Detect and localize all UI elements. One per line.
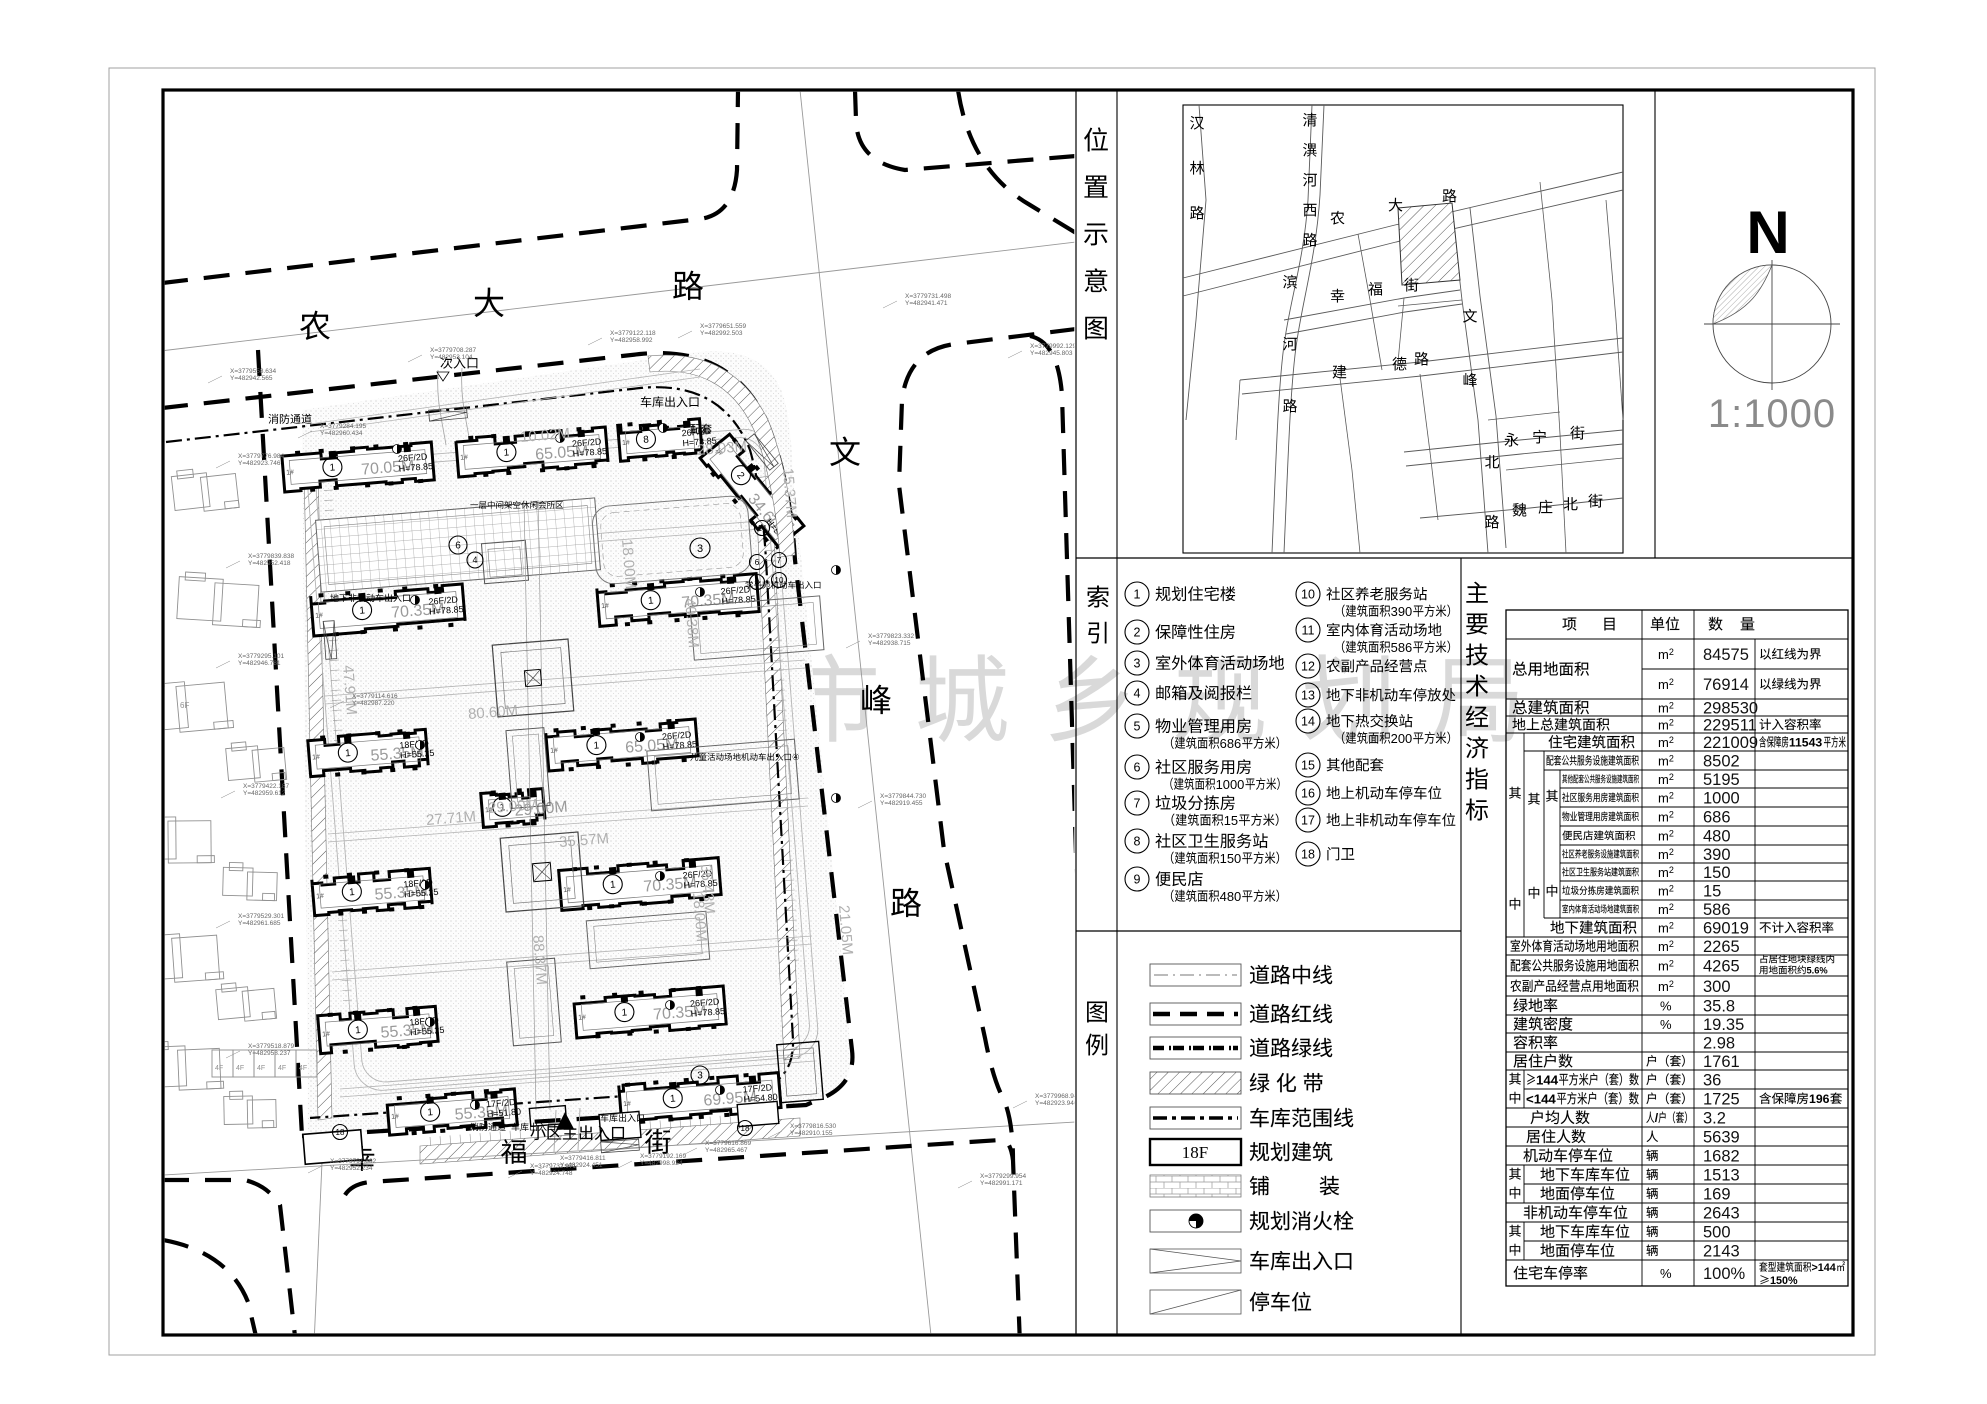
svg-text:229511: 229511 bbox=[1703, 716, 1757, 734]
svg-text:169: 169 bbox=[1703, 1185, 1731, 1203]
svg-text:1#: 1# bbox=[563, 887, 571, 895]
svg-text:7: 7 bbox=[1134, 796, 1141, 810]
svg-text:Y=482961.685: Y=482961.685 bbox=[238, 920, 281, 927]
svg-text:X=3779518.879: X=3779518.879 bbox=[248, 1043, 294, 1050]
svg-text:Y=482960.434: Y=482960.434 bbox=[320, 430, 363, 437]
svg-text:%: % bbox=[1660, 1017, 1672, 1032]
svg-text:36: 36 bbox=[1703, 1071, 1721, 1089]
svg-text:18F: 18F bbox=[1182, 1143, 1208, 1162]
svg-text:X=3779529.301: X=3779529.301 bbox=[238, 913, 284, 920]
svg-text:Y=482942.565: Y=482942.565 bbox=[230, 375, 273, 382]
svg-text:/: / bbox=[1655, 1111, 1659, 1125]
svg-text:586: 586 bbox=[1703, 901, 1731, 919]
svg-text:11543: 11543 bbox=[1789, 736, 1823, 750]
svg-text:4: 4 bbox=[1134, 686, 1141, 700]
svg-text:11: 11 bbox=[1302, 623, 1315, 637]
svg-text:1#: 1# bbox=[460, 454, 468, 462]
svg-text:1761: 1761 bbox=[1703, 1053, 1740, 1071]
svg-text:X=3779823.332: X=3779823.332 bbox=[868, 633, 914, 640]
svg-text:Y=482941.471: Y=482941.471 bbox=[905, 300, 948, 307]
svg-text:X=3779284.195: X=3779284.195 bbox=[320, 423, 366, 430]
svg-text:Y=482919.455: Y=482919.455 bbox=[880, 800, 923, 807]
svg-text:10: 10 bbox=[775, 576, 784, 585]
svg-text:X=3779791.862: X=3779791.862 bbox=[330, 1158, 376, 1165]
svg-text:Y=482953.104: Y=482953.104 bbox=[430, 354, 473, 361]
svg-text:3: 3 bbox=[697, 543, 703, 555]
svg-text:1725: 1725 bbox=[1703, 1090, 1740, 1108]
svg-text:X=3779422.187: X=3779422.187 bbox=[243, 783, 289, 790]
svg-text:1#: 1# bbox=[601, 603, 609, 611]
svg-text:84575: 84575 bbox=[1703, 646, 1749, 664]
svg-text:2643: 2643 bbox=[1703, 1204, 1740, 1222]
svg-text:X=3779558.634: X=3779558.634 bbox=[230, 368, 276, 375]
svg-text:%: % bbox=[1660, 999, 1672, 1014]
svg-text:1: 1 bbox=[1134, 587, 1141, 601]
svg-text:Y=482965.467: Y=482965.467 bbox=[705, 1147, 748, 1154]
svg-text:1#: 1# bbox=[312, 754, 320, 762]
svg-text:Y=482923.940: Y=482923.940 bbox=[1035, 1100, 1078, 1107]
svg-text:12: 12 bbox=[1301, 659, 1315, 673]
svg-text:150: 150 bbox=[1220, 851, 1242, 866]
svg-text:4265: 4265 bbox=[1703, 957, 1740, 975]
svg-text:5.6%: 5.6% bbox=[1807, 965, 1829, 975]
svg-text:X=3779616.869: X=3779616.869 bbox=[705, 1140, 751, 1147]
svg-text:196: 196 bbox=[1809, 1092, 1830, 1106]
svg-text:Y=482959.612: Y=482959.612 bbox=[243, 790, 286, 797]
svg-text:X=3779299.954: X=3779299.954 bbox=[980, 1173, 1026, 1180]
svg-text:X=3779844.730: X=3779844.730 bbox=[880, 793, 926, 800]
svg-text:35.8: 35.8 bbox=[1703, 997, 1735, 1015]
svg-text:3.2: 3.2 bbox=[1703, 1109, 1726, 1127]
svg-text:1682: 1682 bbox=[1703, 1147, 1740, 1165]
svg-text:7: 7 bbox=[777, 555, 782, 565]
svg-text:2265: 2265 bbox=[1703, 938, 1740, 956]
svg-text:100%: 100% bbox=[1703, 1265, 1746, 1283]
svg-text:Y=482958.992: Y=482958.992 bbox=[610, 337, 653, 344]
svg-text:④: ④ bbox=[792, 752, 799, 762]
svg-text:X=3779816.530: X=3779816.530 bbox=[790, 1123, 836, 1130]
svg-text:586: 586 bbox=[1391, 640, 1413, 655]
svg-text:76914: 76914 bbox=[1703, 676, 1749, 694]
svg-text:390: 390 bbox=[1703, 846, 1731, 864]
svg-text:Y=482991.171: Y=482991.171 bbox=[980, 1180, 1023, 1187]
svg-text:14: 14 bbox=[758, 524, 767, 533]
svg-text:4F: 4F bbox=[257, 1065, 265, 1072]
svg-text:150: 150 bbox=[1703, 864, 1731, 882]
svg-text:390: 390 bbox=[1391, 604, 1413, 619]
svg-text:6: 6 bbox=[455, 541, 461, 552]
svg-text:Y=482910.155: Y=482910.155 bbox=[790, 1130, 833, 1137]
svg-text:16: 16 bbox=[1301, 786, 1315, 800]
svg-text:8: 8 bbox=[755, 577, 760, 587]
svg-text:9: 9 bbox=[1134, 872, 1141, 886]
svg-text:480: 480 bbox=[1703, 827, 1731, 845]
svg-text:4F: 4F bbox=[236, 1065, 244, 1072]
svg-text:N: N bbox=[1746, 199, 1789, 266]
svg-text:6F: 6F bbox=[180, 701, 189, 710]
svg-text:18: 18 bbox=[336, 1128, 345, 1137]
svg-text:X=3779708.287: X=3779708.287 bbox=[430, 347, 476, 354]
svg-text:X=3779114.616: X=3779114.616 bbox=[352, 693, 398, 700]
svg-text:Y=482924.748: Y=482924.748 bbox=[530, 1170, 573, 1177]
svg-text:5639: 5639 bbox=[1703, 1128, 1740, 1146]
svg-text:14: 14 bbox=[1301, 714, 1315, 728]
svg-text:2.98: 2.98 bbox=[1703, 1034, 1735, 1052]
svg-text:>144: >144 bbox=[1811, 1262, 1835, 1274]
svg-text:Y=482923.746: Y=482923.746 bbox=[238, 460, 281, 467]
svg-text:%: % bbox=[1660, 1266, 1672, 1281]
svg-text:13: 13 bbox=[1301, 688, 1315, 702]
svg-text:X=3779839.838: X=3779839.838 bbox=[248, 553, 294, 560]
svg-text:19.35: 19.35 bbox=[1703, 1016, 1744, 1034]
svg-text:298530: 298530 bbox=[1703, 699, 1758, 717]
svg-text:Y=482924.451: Y=482924.451 bbox=[560, 1162, 603, 1169]
svg-text:2143: 2143 bbox=[1703, 1242, 1740, 1260]
svg-text:4F: 4F bbox=[299, 1065, 307, 1072]
svg-text:480: 480 bbox=[1220, 889, 1242, 904]
svg-text:1#: 1# bbox=[578, 1014, 586, 1022]
svg-text:Y=482987.220: Y=482987.220 bbox=[352, 700, 395, 707]
svg-text:1#: 1# bbox=[322, 1031, 330, 1039]
svg-text:15: 15 bbox=[1301, 758, 1315, 772]
svg-text:15: 15 bbox=[1224, 813, 1238, 828]
svg-text:18: 18 bbox=[1301, 847, 1315, 861]
svg-text:Y=482952.418: Y=482952.418 bbox=[248, 560, 291, 567]
svg-text:4F: 4F bbox=[278, 1065, 286, 1072]
svg-text:686: 686 bbox=[1220, 736, 1242, 751]
svg-text:3: 3 bbox=[1134, 656, 1141, 670]
svg-text:3: 3 bbox=[697, 1071, 703, 1082]
svg-text:6: 6 bbox=[1134, 760, 1141, 774]
svg-text:5195: 5195 bbox=[1703, 771, 1740, 789]
svg-text:17: 17 bbox=[1301, 813, 1315, 827]
svg-text:1513: 1513 bbox=[1703, 1166, 1740, 1184]
svg-text:1#: 1# bbox=[391, 1113, 399, 1121]
svg-text:2: 2 bbox=[1134, 625, 1141, 639]
svg-text:X=3779992.129: X=3779992.129 bbox=[1030, 343, 1076, 350]
svg-text:1#: 1# bbox=[315, 612, 323, 620]
svg-text:150%: 150% bbox=[1770, 1275, 1798, 1287]
svg-text:10: 10 bbox=[1301, 587, 1315, 601]
svg-text:X=3779776.984: X=3779776.984 bbox=[238, 453, 284, 460]
svg-text:1000: 1000 bbox=[1216, 777, 1245, 792]
svg-text:Y=482945.803: Y=482945.803 bbox=[1030, 350, 1073, 357]
svg-text:1#: 1# bbox=[550, 747, 558, 755]
svg-text:1#: 1# bbox=[622, 439, 630, 447]
svg-text:8502: 8502 bbox=[1703, 752, 1740, 770]
svg-text:Y=482946.781: Y=482946.781 bbox=[238, 660, 281, 667]
svg-text:500: 500 bbox=[1703, 1223, 1731, 1241]
svg-text:4: 4 bbox=[472, 555, 477, 565]
svg-text:300: 300 bbox=[1703, 978, 1731, 996]
svg-text:5: 5 bbox=[1134, 719, 1141, 733]
svg-text:144: 144 bbox=[1536, 1072, 1559, 1087]
svg-text:Y=482992.503: Y=482992.503 bbox=[700, 330, 743, 337]
svg-text:1#: 1# bbox=[286, 469, 294, 477]
svg-text:221009: 221009 bbox=[1703, 734, 1758, 752]
svg-text:X=3779122.118: X=3779122.118 bbox=[610, 330, 656, 337]
svg-text:Y=482998.924: Y=482998.924 bbox=[640, 1160, 683, 1167]
svg-text:18: 18 bbox=[741, 1124, 750, 1133]
svg-text:<144: <144 bbox=[1526, 1091, 1556, 1106]
svg-text:69019: 69019 bbox=[1703, 919, 1749, 937]
svg-text:8: 8 bbox=[1134, 834, 1141, 848]
svg-text:X=3779416.811: X=3779416.811 bbox=[560, 1155, 606, 1162]
svg-text:X=3779731.498: X=3779731.498 bbox=[905, 293, 951, 300]
svg-text:1#: 1# bbox=[316, 893, 324, 901]
svg-text:15: 15 bbox=[1703, 882, 1721, 900]
svg-text:X=3779295.101: X=3779295.101 bbox=[238, 653, 284, 660]
svg-text:1000: 1000 bbox=[1703, 789, 1740, 807]
svg-text:1#: 1# bbox=[623, 1101, 631, 1109]
svg-text:6: 6 bbox=[755, 557, 760, 567]
svg-text:686: 686 bbox=[1703, 808, 1731, 826]
svg-text:Y=482952.234: Y=482952.234 bbox=[330, 1165, 373, 1172]
svg-text:X=3779192.169: X=3779192.169 bbox=[640, 1153, 686, 1160]
svg-text:200: 200 bbox=[1391, 731, 1413, 746]
svg-text:4F: 4F bbox=[215, 1065, 223, 1072]
svg-text:Y=482938.715: Y=482938.715 bbox=[868, 640, 911, 647]
svg-text:X=3779651.559: X=3779651.559 bbox=[700, 323, 746, 330]
svg-text:1:1000: 1:1000 bbox=[1708, 392, 1836, 436]
